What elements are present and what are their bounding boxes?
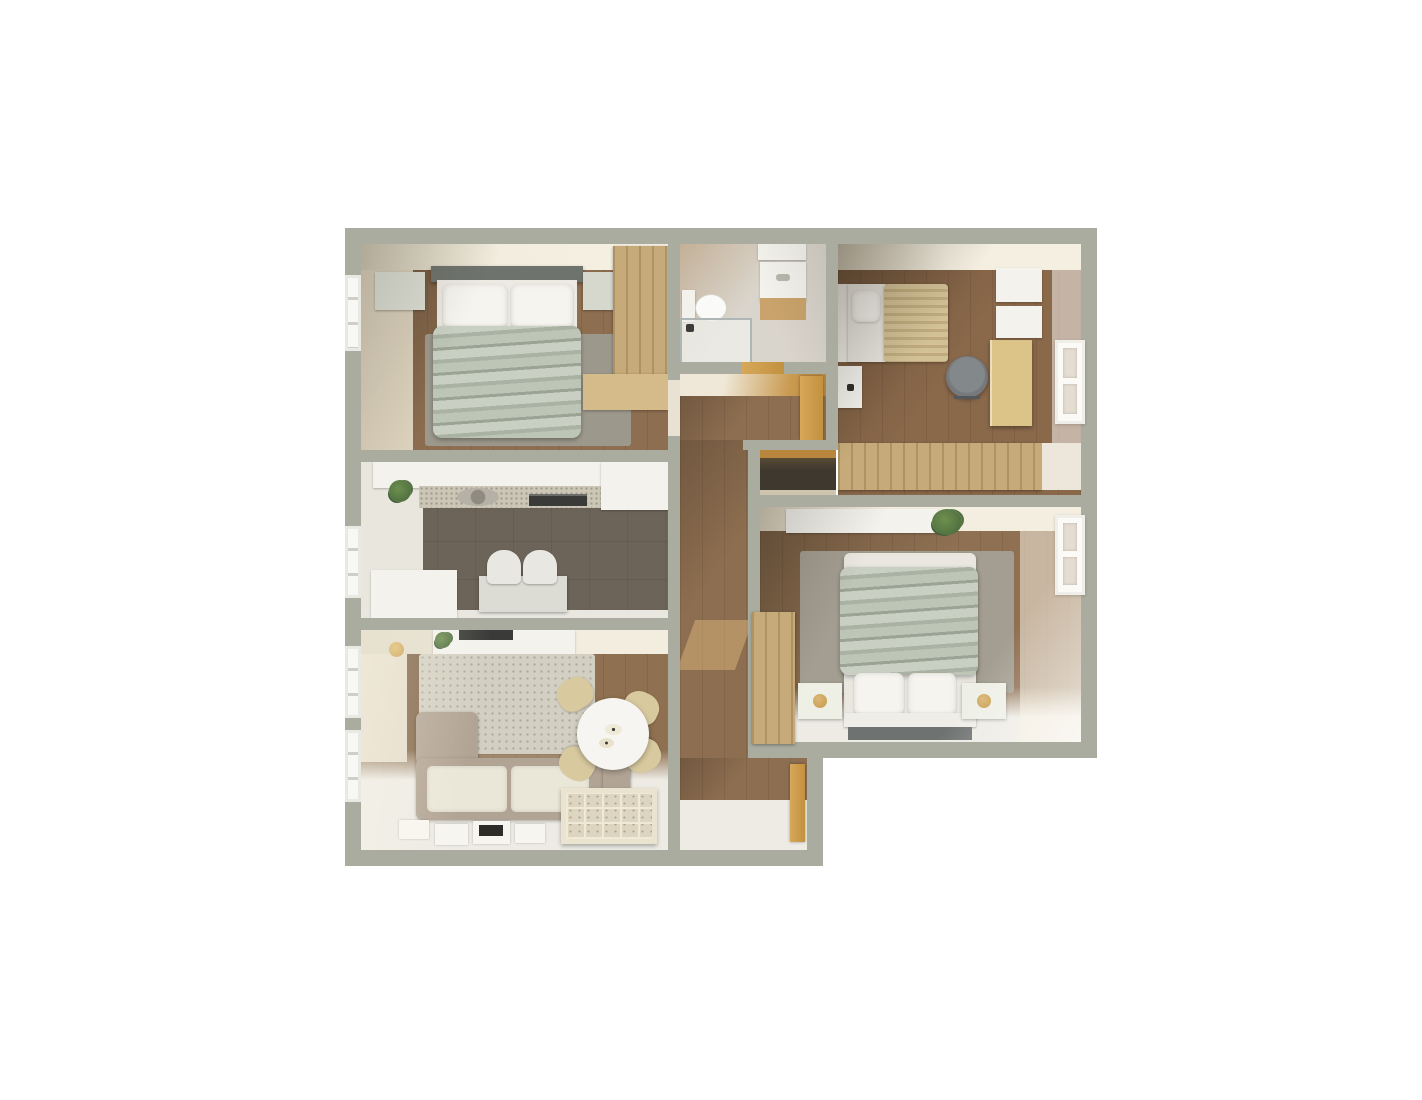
kitchen-window (345, 526, 361, 598)
wall-master-bottom (748, 742, 1097, 758)
bedroom2-wardrobe (838, 443, 1042, 490)
wall-outer-top (345, 228, 1097, 244)
poster-print (479, 825, 503, 836)
kitchen-tall-cabinet (601, 462, 668, 510)
bedroom2-pillow (852, 290, 880, 322)
kitchen-hood (529, 494, 587, 506)
master-bench (848, 727, 972, 740)
wall-bedroom2-left (826, 244, 838, 443)
bedroom1-pillow-right (511, 284, 573, 328)
entry-floor-wood (680, 758, 807, 806)
shower-enclosure (680, 318, 752, 362)
shower-head (686, 324, 694, 332)
kitchen-chair-1 (487, 550, 521, 584)
hallway-top (680, 374, 826, 440)
room-bedroom-master (760, 507, 1081, 742)
wall-entry-right (807, 754, 823, 850)
living-window-1 (345, 646, 361, 718)
apartment-plan (345, 228, 1097, 866)
bedroom2-blanket (884, 284, 948, 362)
bedroom1-blanket (433, 326, 581, 438)
bedroom2-office-chair (946, 356, 988, 398)
floor-plan-render (0, 0, 1422, 1100)
master-headboard (844, 713, 976, 727)
window-pane (1063, 523, 1077, 551)
bathroom-wall-cabinet (758, 244, 806, 260)
wall-bedroom2-master (748, 495, 1097, 507)
living-sofa-cushion-1 (427, 766, 507, 812)
bathroom-vanity-base (760, 298, 806, 320)
entry-door (790, 764, 805, 842)
room-bedroom-2 (838, 244, 1081, 495)
window-pane (1063, 384, 1077, 414)
living-shelf-unit (561, 788, 657, 844)
closet-door-head (760, 450, 836, 458)
master-pillow-right (908, 673, 956, 715)
hallway-main (680, 440, 748, 758)
bathroom-doorway (742, 362, 784, 374)
floor-poster-4 (515, 824, 545, 843)
kitchen-island (371, 570, 457, 618)
room-bathroom (680, 244, 826, 362)
wall-outer-right (1081, 228, 1097, 758)
kitchen-chair-2 (523, 550, 557, 584)
wall-outer-bottom (345, 850, 823, 866)
bedroom2-window (1055, 340, 1085, 424)
master-nightstand-right (962, 683, 1006, 719)
nightstand-handle (847, 384, 854, 391)
living-plant (435, 632, 451, 648)
window-pane (1063, 557, 1077, 585)
room-bedroom-1 (361, 244, 668, 450)
wall-hallway-left (668, 244, 680, 850)
bedroom2-open-door (800, 376, 823, 440)
office-chair-base (954, 396, 980, 399)
wall-bedroom1-kitchen (361, 450, 680, 462)
bathroom-vanity (760, 262, 806, 302)
living-shelf-grid (566, 793, 652, 839)
nightstand-lamp (977, 694, 991, 708)
living-window-2 (345, 730, 361, 802)
living-wall-lamp (389, 642, 404, 657)
floor-poster-1 (399, 820, 429, 839)
kitchen-plant (389, 480, 411, 502)
floor-poster-3 (473, 821, 510, 844)
room-living (361, 630, 668, 850)
wall-kitchen-living (361, 618, 680, 630)
bedroom1-wardrobe (613, 246, 668, 388)
floor-poster-2 (435, 824, 468, 845)
window-pane (1063, 348, 1077, 378)
entry-hall (680, 758, 807, 850)
hall-closet-niche (760, 450, 836, 495)
master-nightstand-left (798, 683, 842, 719)
master-pillow-left (854, 673, 904, 715)
entry-floor-white (680, 800, 807, 850)
table-plate-2 (599, 738, 614, 748)
master-plant (932, 509, 962, 535)
bedroom2-wardrobe-end (1042, 443, 1081, 490)
room-kitchen (361, 462, 668, 618)
living-tv (459, 630, 513, 640)
nightstand-lamp (813, 694, 827, 708)
kitchen-sink (457, 488, 499, 506)
bathroom-faucet (776, 274, 790, 281)
bedroom1-doorway (668, 380, 680, 436)
bedroom1-wardrobe-shelf (583, 374, 668, 410)
bedroom2-shelf-upper (996, 268, 1042, 302)
bedroom1-window (345, 275, 361, 351)
dining-table (577, 698, 649, 770)
master-shelf (786, 509, 938, 533)
bedroom2-shelf-lower (996, 306, 1042, 338)
master-window (1055, 515, 1085, 595)
hallway-sunlight-1 (680, 620, 748, 670)
table-plate-1 (605, 724, 622, 735)
master-wardrobe (752, 612, 795, 744)
bedroom1-pillow-left (443, 284, 507, 328)
bedroom1-nightstand-left (375, 272, 425, 310)
master-blanket (840, 567, 978, 675)
bedroom2-desk (990, 340, 1032, 426)
bedroom2-nightstand (838, 366, 862, 408)
